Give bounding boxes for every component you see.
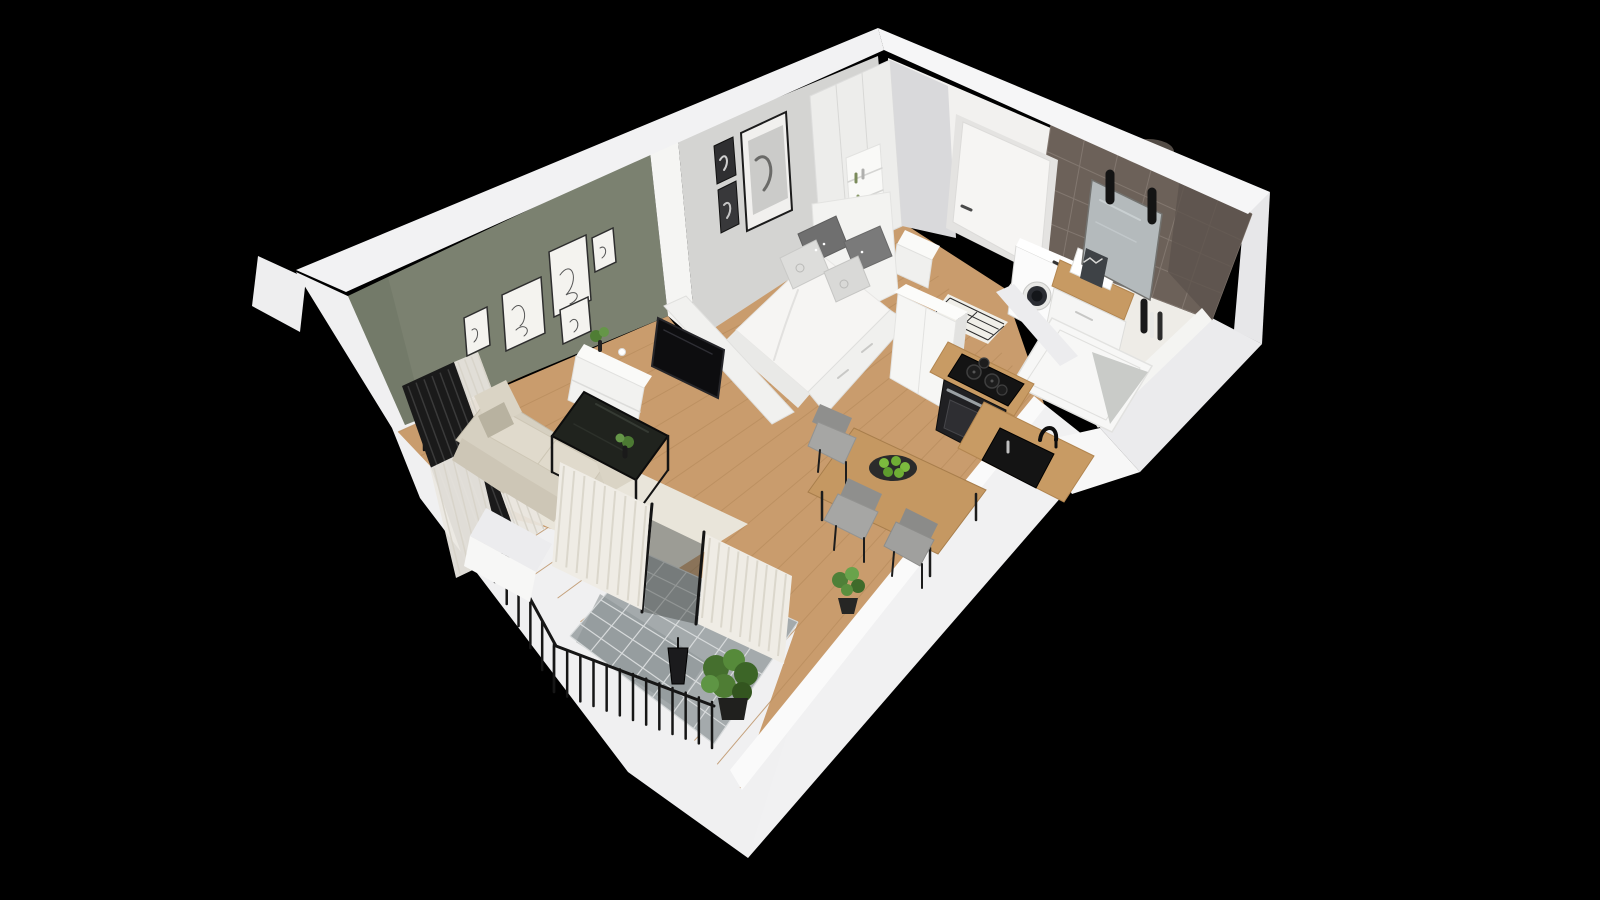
balcony-plant-leaf-3 xyxy=(734,662,758,686)
photo-frame-dark-1 xyxy=(714,137,736,184)
pillow-dot-1 xyxy=(815,249,818,252)
apartment-floorplan-3d xyxy=(0,0,1600,900)
burner-dot-1 xyxy=(973,371,976,374)
west-wall-stub xyxy=(252,256,306,332)
apple-1 xyxy=(879,458,889,468)
balcony-plant-pot xyxy=(718,698,748,720)
indoor-plant-leaf-3 xyxy=(851,579,865,593)
apple-4 xyxy=(883,467,893,477)
washer-door-glass xyxy=(1032,291,1043,302)
table-plant-leaf-2 xyxy=(616,434,625,443)
indoor-plant-leaf-2 xyxy=(845,567,859,581)
burner-3 xyxy=(979,358,989,368)
lantern-body xyxy=(668,648,688,684)
stand-plant-leaf-2 xyxy=(599,327,609,337)
photo-frame-dark-2 xyxy=(718,181,739,233)
pillow-dot-2 xyxy=(823,243,826,246)
balcony-plant-leaf-6 xyxy=(701,675,719,693)
deco-vase xyxy=(619,349,626,356)
floorplan-render-canvas xyxy=(0,0,1600,900)
burner-4 xyxy=(997,385,1007,395)
pillow-dot-3 xyxy=(861,251,864,254)
burner-dot-2 xyxy=(991,380,994,383)
apple-5 xyxy=(894,468,904,478)
indoor-plant-leaf-4 xyxy=(841,584,853,596)
apple-2 xyxy=(891,456,901,466)
